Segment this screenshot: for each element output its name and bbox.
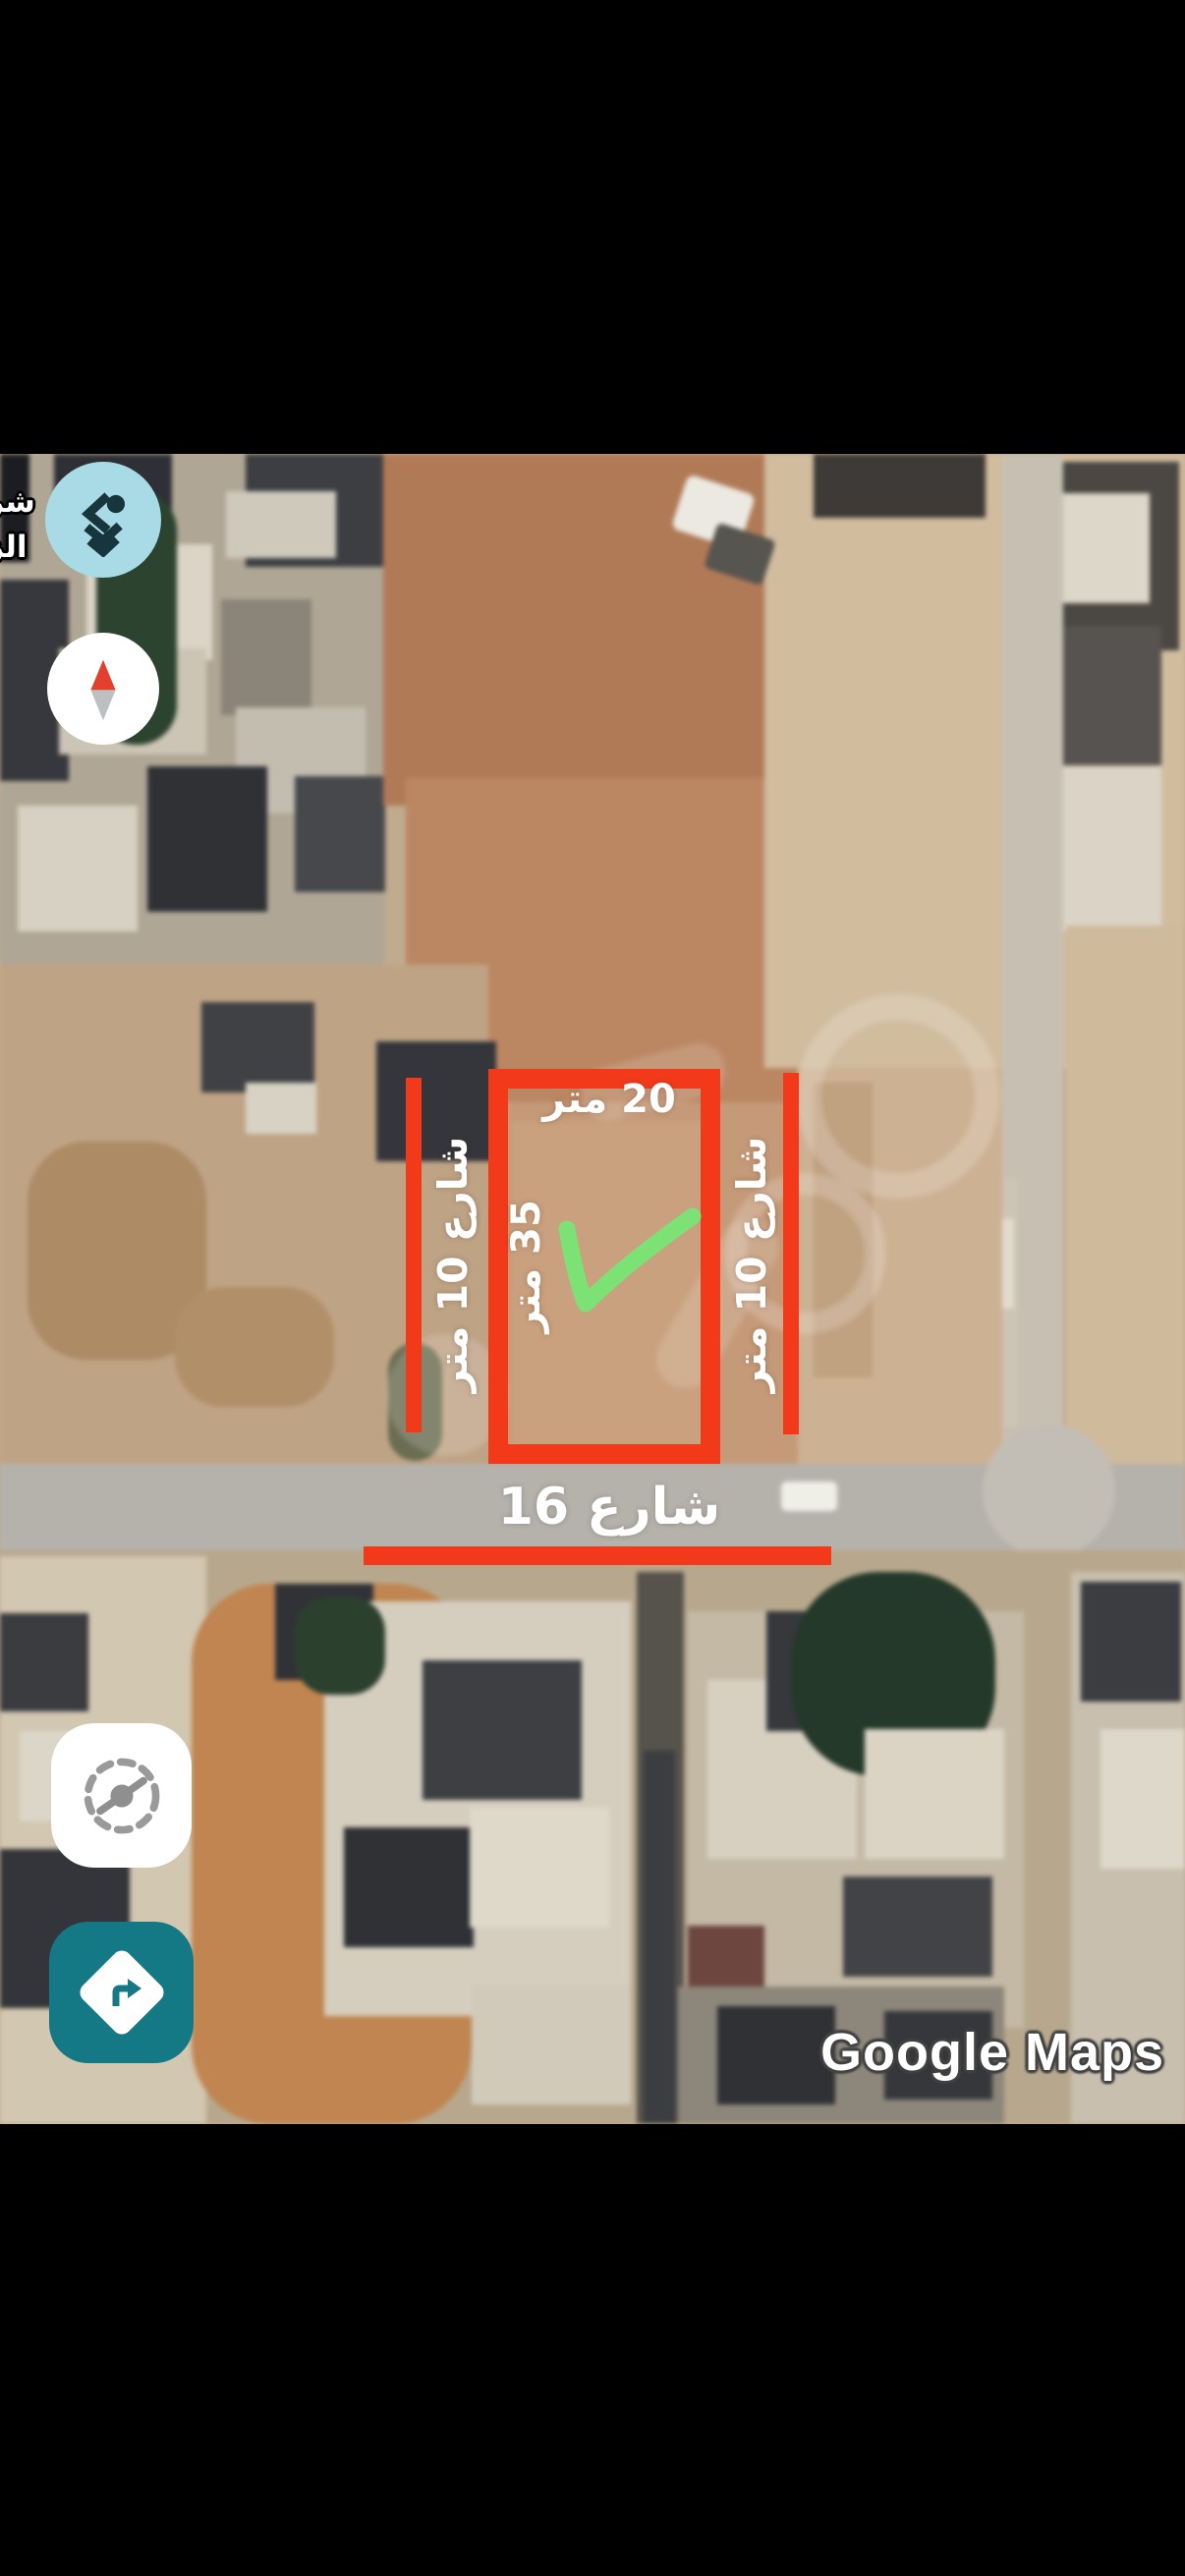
plot-depth-label: 35 متر <box>504 1200 549 1333</box>
plot-width-label: 20 متر <box>542 1077 676 1122</box>
turn-right-arrow-icon <box>90 1961 153 2024</box>
right-street-label: شارع 10 متر <box>728 1137 775 1393</box>
bottom-street-label: شارع 16 <box>498 1478 721 1537</box>
calibrate-compass-icon <box>75 1749 169 1843</box>
screenshot-root: { "watermark": { "text": "Google Maps" }… <box>0 0 1185 2576</box>
top-letterbox <box>0 0 1185 454</box>
right-street-line <box>783 1073 799 1434</box>
left-street-line <box>406 1078 422 1432</box>
layers-chevron-logo-icon <box>66 482 141 557</box>
street-name-line2: الز <box>0 525 35 570</box>
google-maps-watermark: Google Maps <box>820 2022 1164 2083</box>
compass-needle-icon <box>69 654 138 723</box>
calibrate-compass-button[interactable] <box>51 1723 192 1868</box>
left-street-label: شارع 10 متر <box>429 1137 477 1393</box>
street-name-line1: شر <box>0 479 35 525</box>
directions-button[interactable] <box>49 1922 194 2063</box>
green-checkmark <box>550 1196 717 1323</box>
satellite-map-viewport[interactable]: 20 متر 35 متر شارع 10 متر شارع 10 متر شا… <box>0 454 1185 2124</box>
compass-button[interactable] <box>47 633 159 745</box>
bottom-letterbox <box>0 2124 1185 2576</box>
bottom-street-underline <box>364 1546 831 1565</box>
street-name-fragment: شر الز <box>0 479 35 570</box>
app-logo-button[interactable] <box>45 462 161 578</box>
